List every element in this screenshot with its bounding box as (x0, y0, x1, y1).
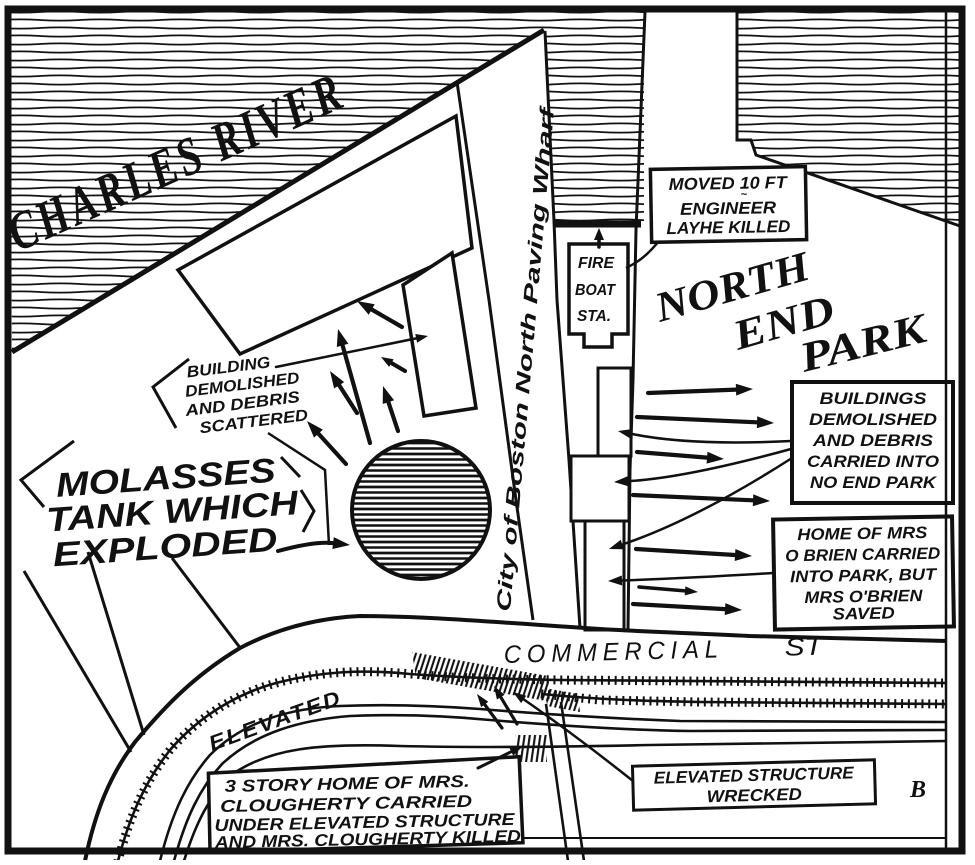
svg-text:INTO PARK, BUT: INTO PARK, BUT (790, 566, 938, 587)
svg-text:B: B (909, 777, 926, 803)
svg-text:O BRIEN CARRIED: O BRIEN CARRIED (785, 545, 940, 566)
svg-text:ENGINEER: ENGINEER (680, 198, 777, 219)
svg-text:SAVED: SAVED (833, 604, 895, 623)
svg-text:COMMERCIAL: COMMERCIAL (503, 635, 724, 669)
svg-text:AND DEBRIS: AND DEBRIS (812, 431, 934, 450)
svg-text:MOVED 10 FT: MOVED 10 FT (668, 173, 788, 194)
svg-text:CARRIED INTO: CARRIED INTO (807, 452, 939, 471)
svg-text:DEMOLISHED: DEMOLISHED (809, 410, 937, 429)
svg-text:NO END PARK: NO END PARK (810, 473, 938, 492)
svg-text:BOAT: BOAT (575, 282, 616, 299)
svg-text:HOME OF MRS: HOME OF MRS (797, 524, 927, 544)
svg-text:STA.: STA. (577, 308, 611, 325)
svg-text:FIRE: FIRE (578, 255, 615, 272)
svg-text:LAYHE KILLED: LAYHE KILLED (666, 217, 790, 238)
svg-text:BUILDINGS: BUILDINGS (820, 389, 928, 408)
svg-text:ST: ST (784, 633, 825, 662)
svg-text:WRECKED: WRECKED (707, 785, 802, 806)
